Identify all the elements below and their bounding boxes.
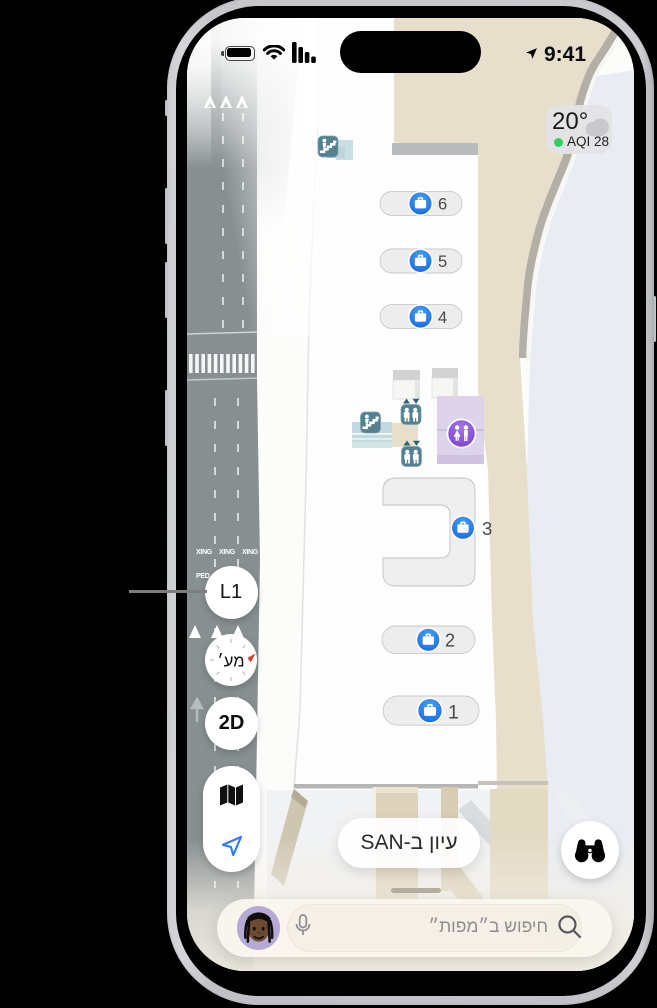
svg-text:XING: XING bbox=[219, 549, 236, 556]
svg-text:5: 5 bbox=[438, 253, 447, 271]
svg-text:4: 4 bbox=[438, 309, 447, 327]
svg-text:XING: XING bbox=[242, 549, 259, 556]
svg-text:1: 1 bbox=[448, 702, 459, 724]
svg-text:XING: XING bbox=[196, 549, 213, 556]
svg-text:מע׳: מע׳ bbox=[217, 652, 244, 670]
svg-text:2: 2 bbox=[445, 631, 455, 651]
svg-text:6: 6 bbox=[438, 196, 447, 214]
svg-text:3: 3 bbox=[482, 518, 492, 539]
